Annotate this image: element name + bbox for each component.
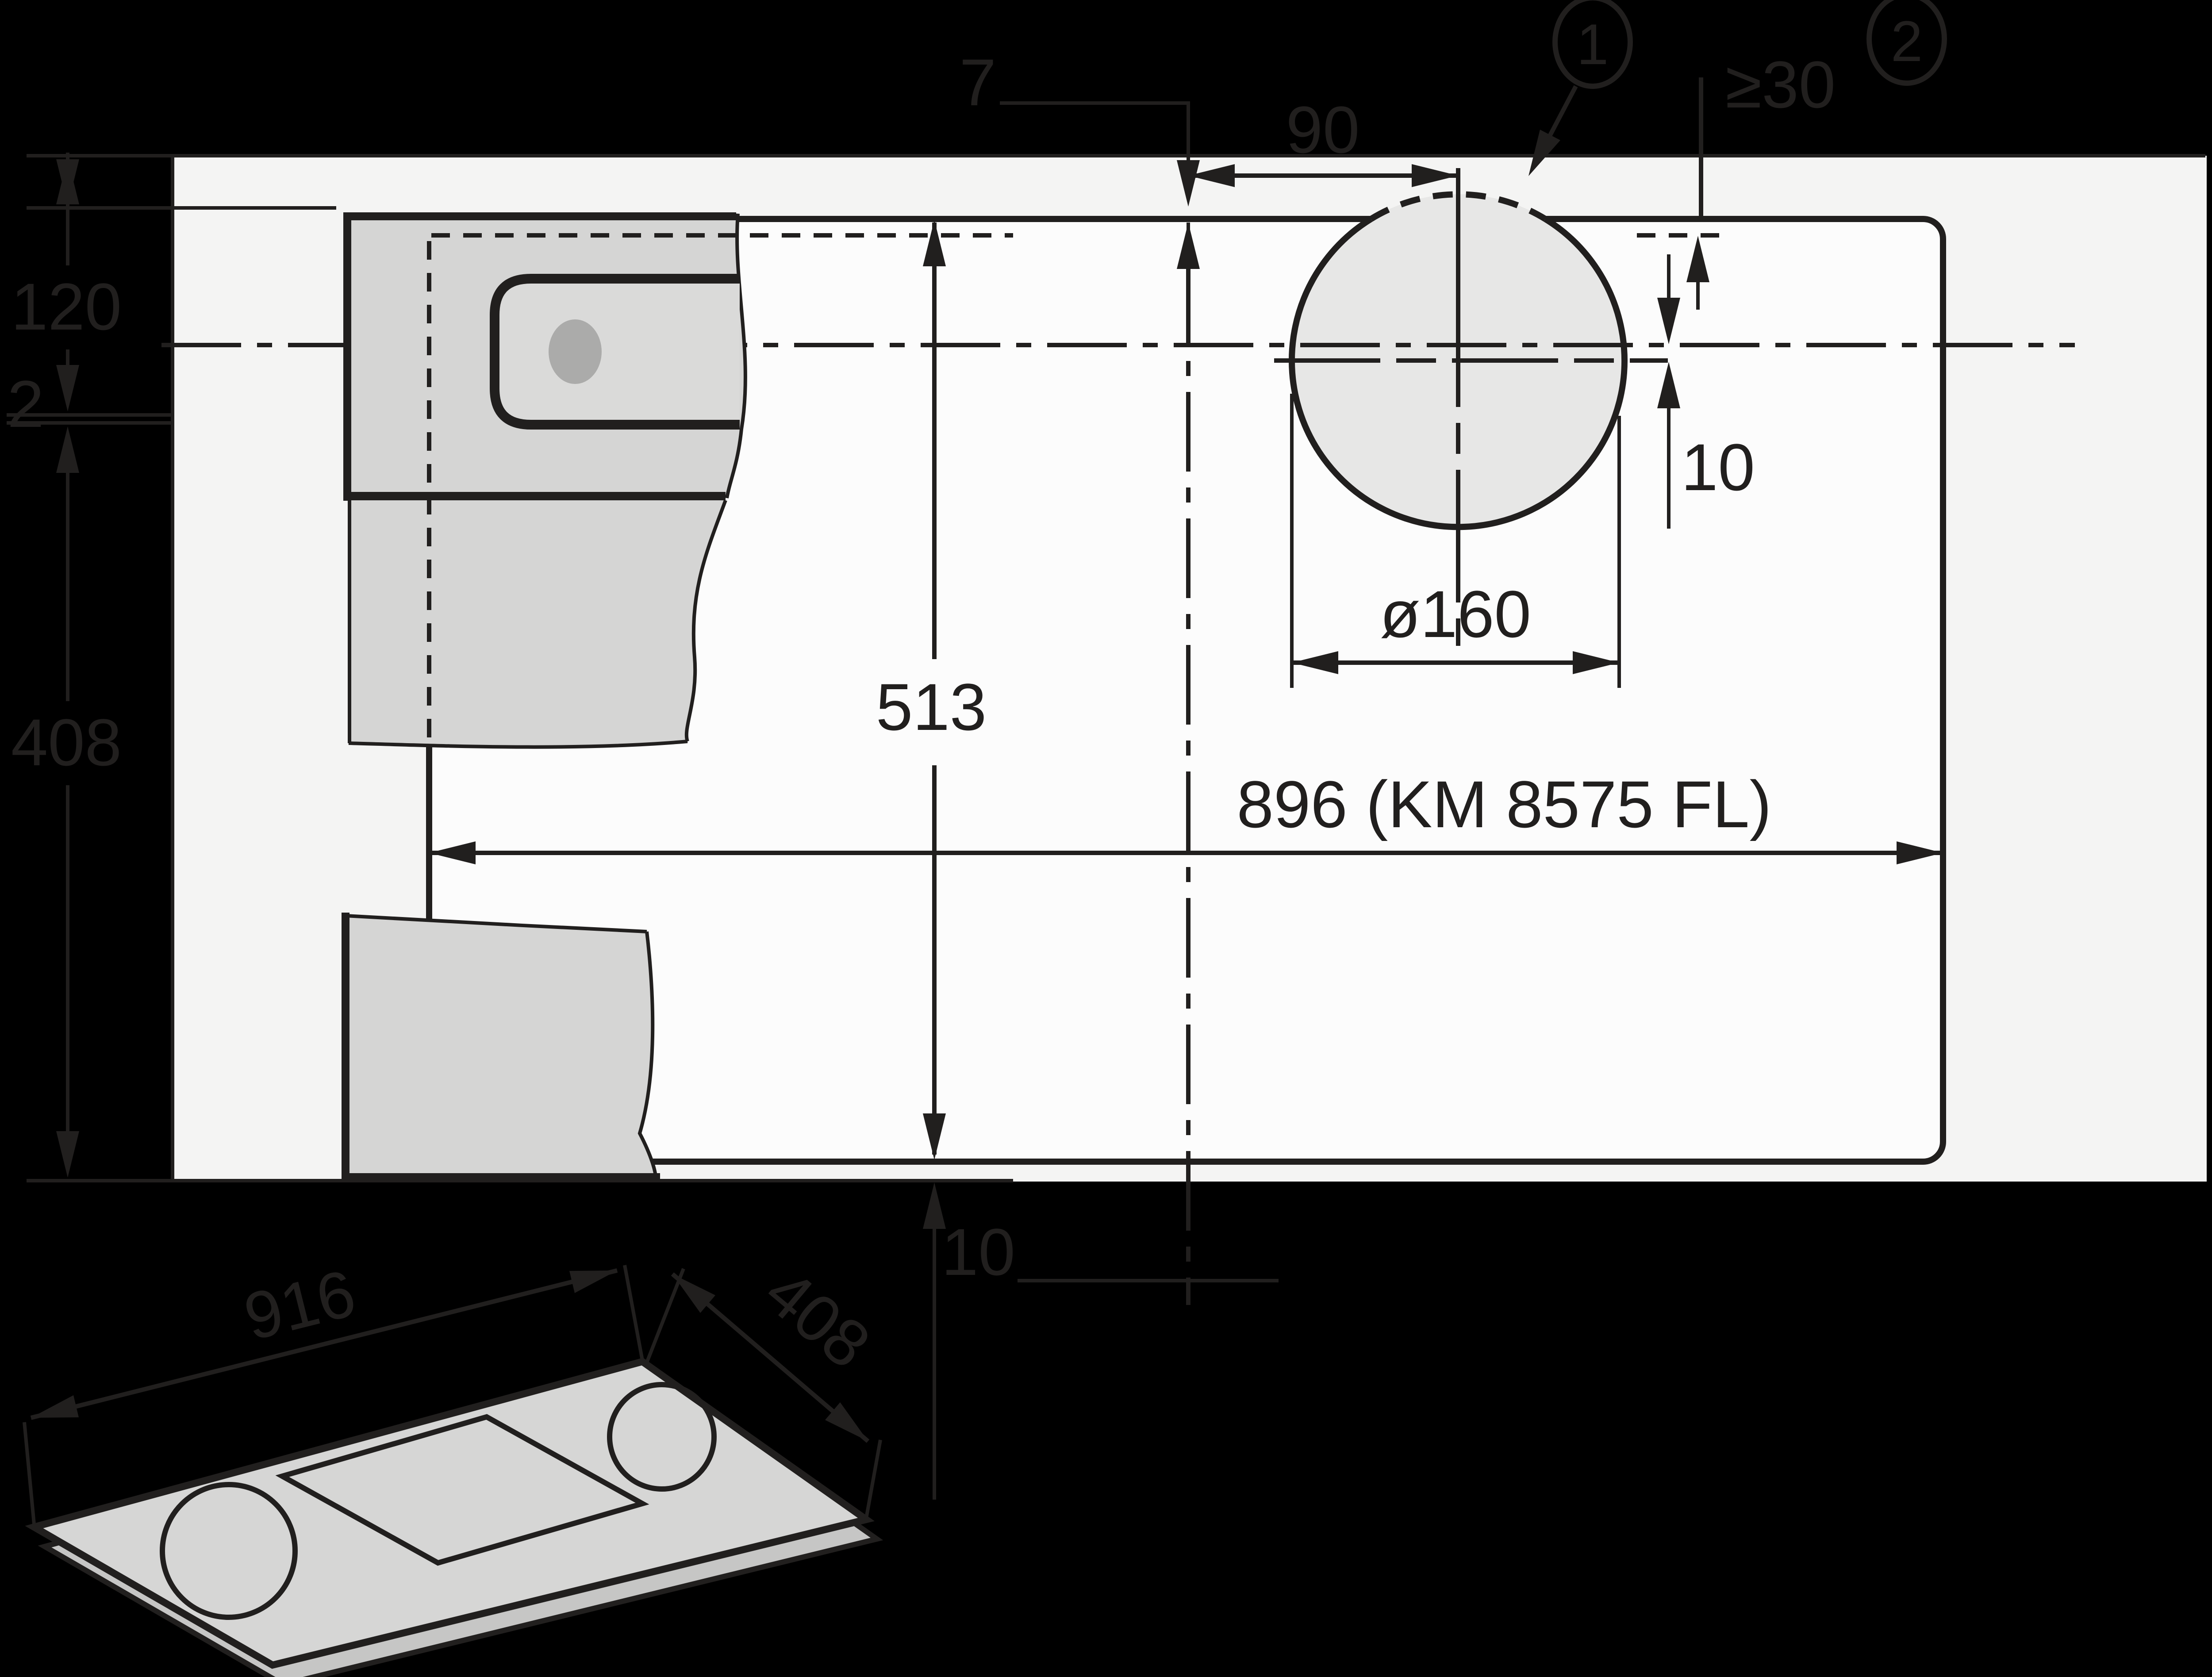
dim-160-label: ø160 bbox=[1380, 577, 1531, 651]
dim-clearance-label: ≥30 bbox=[1725, 47, 1836, 122]
cabinet-lower-left bbox=[342, 913, 660, 1182]
installation-drawing: 7 90 ≥30 2 1 513 896 (KM 8575 FL) bbox=[0, 0, 2212, 1677]
footnote-1-label: 1 bbox=[1577, 12, 1609, 77]
dim-896-label: 896 (KM 8575 FL) bbox=[1237, 767, 1772, 841]
knob bbox=[549, 319, 602, 384]
dim-left-chain: 120 2 408 bbox=[7, 153, 173, 1178]
iso-panel-top bbox=[34, 1362, 866, 1665]
dim-7-label: 7 bbox=[960, 45, 996, 119]
dim-90-label: 90 bbox=[1286, 92, 1360, 167]
dim-513-label: 513 bbox=[876, 670, 987, 744]
cabinet-lower-mid bbox=[349, 500, 726, 747]
dim-10-front-label: 10 bbox=[941, 1215, 1015, 1289]
control-slot bbox=[495, 279, 740, 425]
isometric-view: 916 408 bbox=[24, 1254, 884, 1677]
dim-2-label: 2 bbox=[7, 367, 44, 441]
footnote-2-label: 2 bbox=[1891, 9, 1923, 73]
dim-120-label: 120 bbox=[11, 269, 122, 344]
dim-10-offset-label: 10 bbox=[1681, 430, 1755, 504]
iso-408-label: 408 bbox=[752, 1254, 884, 1382]
dim-408-label: 408 bbox=[11, 705, 122, 779]
footnote-1: 1 bbox=[1528, 0, 1630, 176]
dim-10-front: 10 bbox=[923, 1182, 1279, 1500]
